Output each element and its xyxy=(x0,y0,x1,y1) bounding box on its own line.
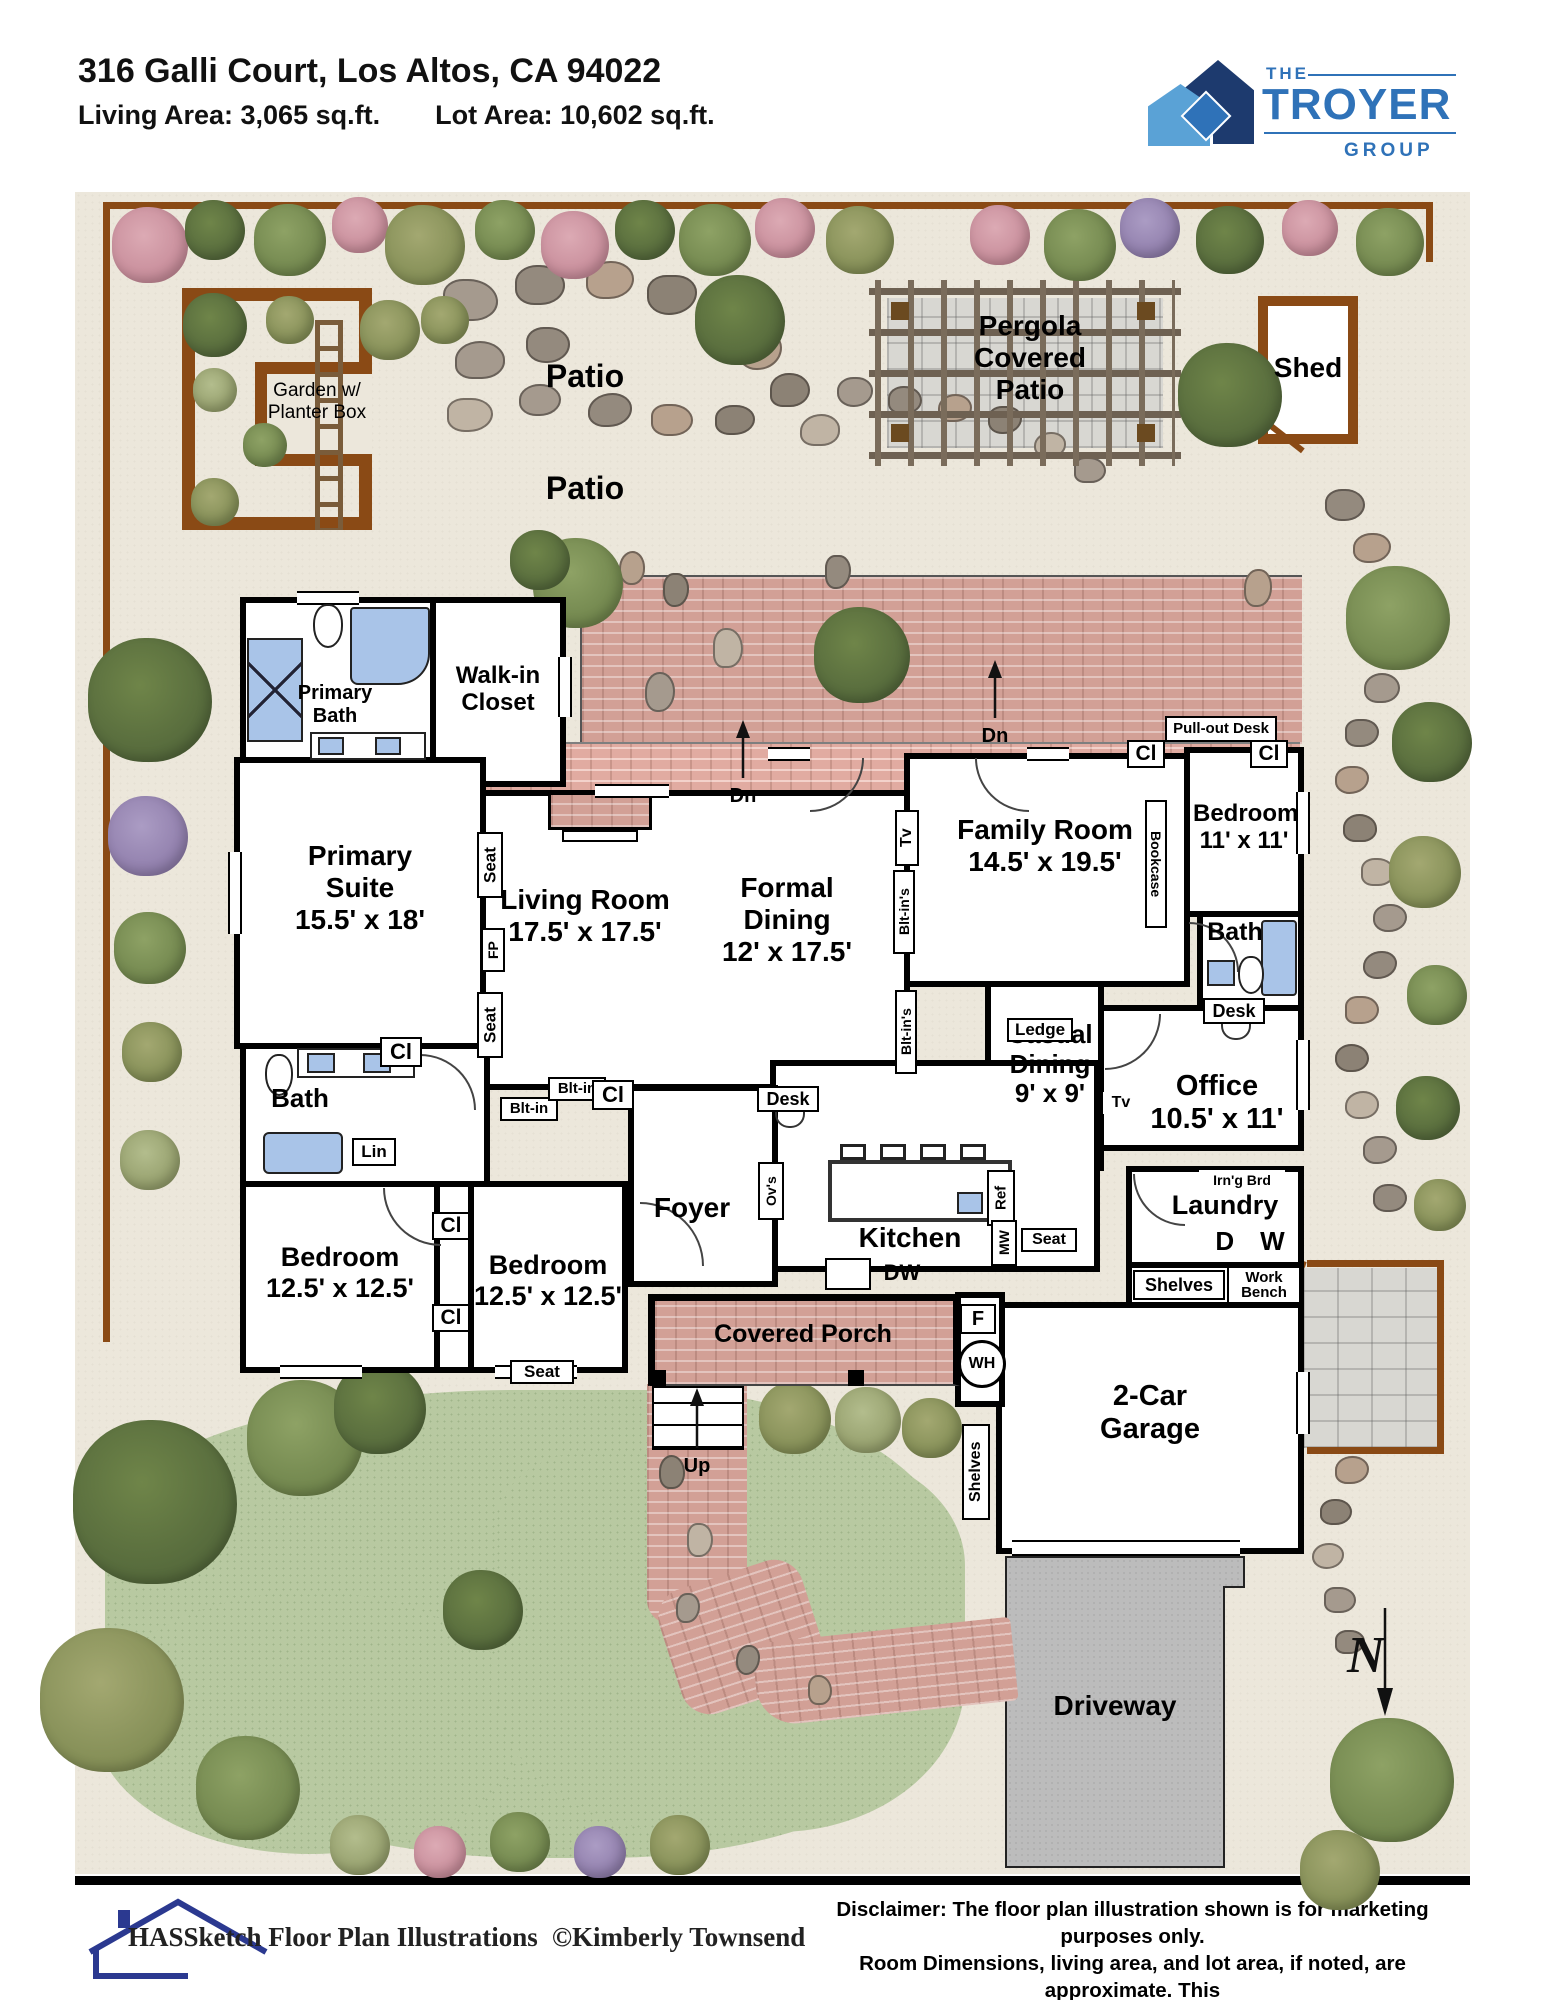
fireplace-hearth xyxy=(562,830,638,842)
kitchen-label: Kitchen xyxy=(835,1222,985,1254)
tree-icon xyxy=(183,293,247,357)
pergola-post-tr xyxy=(1137,302,1155,320)
porch-post-mid xyxy=(848,1370,864,1386)
tree-icon xyxy=(332,197,388,253)
tree-icon xyxy=(193,368,237,412)
window xyxy=(1296,1372,1310,1434)
stone-icon xyxy=(1345,719,1379,747)
logo-troyer: TROYER xyxy=(1262,80,1451,130)
tree-icon xyxy=(970,205,1030,265)
fp-label: FP xyxy=(481,928,505,972)
bedroom-sw-label: Bedroom12.5' x 12.5' xyxy=(250,1242,430,1304)
stone-icon xyxy=(1335,1044,1369,1072)
tree-icon xyxy=(679,204,751,276)
closet-label: Cl xyxy=(380,1037,422,1067)
garden-label: Garden w/ Planter Box xyxy=(263,380,371,423)
ironing-board-label: Irn'g Brd xyxy=(1199,1170,1285,1190)
stone-icon xyxy=(1312,1543,1344,1569)
stone-icon xyxy=(1320,1499,1352,1525)
shed-label: Shed xyxy=(1268,352,1348,384)
closet-label: Cl xyxy=(1127,740,1165,768)
tree-icon xyxy=(360,300,420,360)
family-room-label: Family Room14.5' x 19.5' xyxy=(955,814,1135,878)
tree-icon xyxy=(330,1815,390,1875)
tree-icon xyxy=(1356,208,1424,276)
lot-area: Lot Area: 10,602 sq.ft. xyxy=(435,100,715,130)
window xyxy=(1027,747,1069,761)
stone-icon xyxy=(1373,1184,1407,1212)
tree-icon xyxy=(114,912,186,984)
tree-icon xyxy=(1300,1830,1380,1910)
tree-icon xyxy=(254,204,326,276)
window xyxy=(1296,792,1310,854)
pull-out-desk-label: Pull-out Desk xyxy=(1165,716,1277,742)
furnace-label: F xyxy=(960,1304,996,1334)
window xyxy=(1296,1040,1310,1110)
formal-dining-label: Formal Dining12' x 17.5' xyxy=(697,872,877,968)
footer-rule xyxy=(75,1876,1470,1885)
floor-plan-page: 316 Galli Court, Los Altos, CA 94022 Liv… xyxy=(0,0,1545,2000)
tub xyxy=(263,1132,343,1174)
pergola-post-tl xyxy=(891,302,909,320)
bookcase-label: Bookcase xyxy=(1145,800,1167,928)
tree-icon xyxy=(88,638,212,762)
garage-door xyxy=(1012,1540,1240,1556)
tree-icon xyxy=(385,205,465,285)
tree-icon xyxy=(73,1420,237,1584)
shelves-label: Shelves xyxy=(962,1424,990,1520)
covered-porch-label: Covered Porch xyxy=(673,1320,933,1349)
foyer-label: Foyer xyxy=(637,1192,747,1224)
tree-icon xyxy=(615,200,675,260)
stone-icon xyxy=(808,1675,832,1705)
brand-text: HASSketch Floor Plan Illustrations xyxy=(128,1922,538,1952)
primary-suite-label: Primary Suite15.5' x 18' xyxy=(275,840,445,936)
tub xyxy=(350,607,430,685)
north-arrow: N xyxy=(1333,1604,1423,1720)
window xyxy=(558,657,572,717)
driveway-label: Driveway xyxy=(1035,1690,1195,1722)
island-sink xyxy=(957,1192,983,1214)
area-summary: Living Area: 3,065 sq.ft.Lot Area: 10,60… xyxy=(78,100,770,131)
tree-icon xyxy=(814,607,910,703)
sink xyxy=(318,737,344,755)
washer-label: W xyxy=(1260,1228,1285,1255)
tree-icon xyxy=(490,1812,550,1872)
bedroom-s-label: Bedroom12.5' x 12.5' xyxy=(463,1250,633,1312)
pergola-post-bl xyxy=(891,424,909,442)
tree-icon xyxy=(1414,1179,1466,1231)
stone-icon xyxy=(713,628,743,668)
dn-arrow: Dn xyxy=(723,720,763,808)
tree-icon xyxy=(243,423,287,467)
fence-paver-top xyxy=(1307,1260,1443,1267)
built-ins-label: Blt-in's xyxy=(893,870,915,954)
tree-icon xyxy=(40,1628,184,1772)
seat-label: Seat xyxy=(1021,1228,1077,1252)
stone-icon xyxy=(1364,673,1400,703)
stone-icon xyxy=(1363,951,1397,979)
toilet-icon xyxy=(1238,956,1264,994)
toilet-icon xyxy=(313,604,343,648)
primary-bath-label: Primary Bath xyxy=(275,682,395,728)
linen-label: Lin xyxy=(352,1138,396,1166)
logo-group: GROUP xyxy=(1344,140,1434,162)
patio-mid-label: Patio xyxy=(505,470,665,506)
garage-label: 2-Car Garage xyxy=(1065,1380,1235,1446)
troyer-logo: THE TROYER GROUP xyxy=(1148,58,1458,176)
tree-icon xyxy=(759,1382,831,1454)
tree-icon xyxy=(1407,965,1467,1025)
tree-icon xyxy=(191,478,239,526)
water-heater: WH xyxy=(958,1340,1006,1388)
tree-icon xyxy=(1120,198,1180,258)
dn-label: Dn xyxy=(723,785,763,808)
stool xyxy=(880,1144,906,1160)
stone-icon xyxy=(800,414,840,446)
north-letter: N xyxy=(1347,1626,1385,1685)
stone-icon xyxy=(687,1523,713,1557)
up-label: Up xyxy=(677,1455,717,1478)
walk-in-closet-label: Walk-in Closet xyxy=(438,662,558,717)
wh-label: WH xyxy=(969,1355,996,1373)
ovens-label: Ov's xyxy=(758,1162,784,1220)
tree-icon xyxy=(196,1736,300,1840)
tree-icon xyxy=(112,207,188,283)
fence-left xyxy=(103,202,110,1342)
tree-icon xyxy=(541,211,609,279)
disclaimer-line: Disclaimer: The floor plan illustration … xyxy=(800,1896,1465,1950)
fence-right-stub xyxy=(1426,202,1433,262)
stone-icon xyxy=(770,373,810,407)
fridge-label: Ref xyxy=(987,1170,1015,1226)
stone-icon xyxy=(1325,489,1365,521)
stone-icon xyxy=(1373,904,1407,932)
stone-icon xyxy=(1244,569,1272,607)
washer-dryer-label: DW xyxy=(1205,1224,1295,1258)
fence-paver-bottom xyxy=(1307,1447,1444,1454)
hall-bath-label: Bath xyxy=(255,1084,345,1114)
stool xyxy=(960,1144,986,1160)
living-area: Living Area: 3,065 sq.ft. xyxy=(78,100,380,130)
garden-trellis xyxy=(315,320,343,530)
footer-brand: HASSketch Floor Plan Illustrations©Kimbe… xyxy=(128,1922,805,1953)
stone-icon xyxy=(1343,814,1377,842)
driveway-notch xyxy=(1223,1556,1245,1588)
office-label: Office10.5' x 11' xyxy=(1137,1070,1297,1136)
tree-icon xyxy=(1044,209,1116,281)
stone-icon xyxy=(647,275,697,315)
sink xyxy=(307,1053,335,1073)
side-paver-patio xyxy=(1303,1268,1443,1448)
copyright-text: ©Kimberly Townsend xyxy=(552,1922,805,1952)
tree-icon xyxy=(1346,566,1450,670)
seat-label: Seat xyxy=(477,832,503,898)
fence-paver-right xyxy=(1437,1260,1444,1452)
stone-icon xyxy=(715,405,755,435)
stone-icon xyxy=(651,404,693,436)
site-plan: Pergola Covered Patio Shed Garden w/ Pla… xyxy=(75,192,1470,1874)
tree-icon xyxy=(574,1826,626,1878)
window xyxy=(768,747,810,761)
porch-post-left xyxy=(650,1370,666,1386)
stool xyxy=(840,1144,866,1160)
tree-icon xyxy=(414,1826,466,1878)
work-bench-label: Work Bench xyxy=(1227,1266,1301,1304)
closet-label: Cl xyxy=(1250,740,1288,768)
stone-icon xyxy=(455,341,505,379)
tree-icon xyxy=(120,1130,180,1190)
tree-icon xyxy=(108,796,188,876)
window xyxy=(228,852,242,934)
stone-icon xyxy=(1345,996,1379,1024)
window xyxy=(280,1365,362,1379)
tree-icon xyxy=(1392,702,1472,782)
living-room-label: Living Room17.5' x 17.5' xyxy=(500,884,670,948)
stone-icon xyxy=(619,551,645,585)
stone-icon xyxy=(1353,533,1391,563)
stone-icon xyxy=(588,393,632,427)
pergola-label: Pergola Covered Patio xyxy=(945,310,1115,406)
stone-icon xyxy=(447,398,493,432)
tree-icon xyxy=(475,200,535,260)
stone-icon xyxy=(1363,1136,1397,1164)
bedroom-ne-label: Bedroom11' x 11' xyxy=(1193,800,1295,855)
tree-icon xyxy=(443,1570,523,1650)
tree-icon xyxy=(421,296,469,344)
tv-label: Tv xyxy=(895,810,919,866)
microwave-label: MW xyxy=(991,1220,1017,1266)
stone-icon xyxy=(1335,1456,1369,1484)
built-ins-label: Blt-in's xyxy=(895,990,917,1074)
disclaimer: Disclaimer: The floor plan illustration … xyxy=(800,1896,1465,2000)
stone-icon xyxy=(1335,766,1369,794)
tree-icon xyxy=(902,1398,962,1458)
tree-icon xyxy=(695,275,785,365)
window xyxy=(297,591,359,605)
desk-label: Desk xyxy=(1203,998,1265,1024)
tree-icon xyxy=(185,200,245,260)
desk-label: Desk xyxy=(757,1086,819,1112)
kitchen-island xyxy=(828,1160,1012,1222)
tree-icon xyxy=(650,1815,710,1875)
shelves-label: Shelves xyxy=(1133,1270,1225,1300)
laundry-label: Laundry xyxy=(1160,1190,1290,1221)
tree-icon xyxy=(510,530,570,590)
dishwasher-label: DW xyxy=(877,1258,927,1288)
stool xyxy=(920,1144,946,1160)
closet-label: Cl xyxy=(432,1304,470,1332)
dn-label: Dn xyxy=(975,725,1015,748)
ledge-label: Ledge xyxy=(1007,1018,1073,1042)
bath-ne-label: Bath xyxy=(1203,918,1267,947)
tree-icon xyxy=(122,1022,182,1082)
closet-label: Cl xyxy=(592,1080,634,1110)
pergola-post-br xyxy=(1137,424,1155,442)
sink xyxy=(375,737,401,755)
tree-icon xyxy=(1389,836,1461,908)
tree-icon xyxy=(266,296,314,344)
patio-top-label: Patio xyxy=(515,358,655,394)
tree-icon xyxy=(1396,1076,1460,1140)
disclaimer-line: Room Dimensions, living area, and lot ar… xyxy=(800,1950,1465,2000)
page-title: 316 Galli Court, Los Altos, CA 94022 xyxy=(78,52,661,91)
up-arrow: Up xyxy=(677,1388,717,1480)
stone-icon xyxy=(837,377,873,407)
seat-label: Seat xyxy=(477,992,503,1058)
tree-icon xyxy=(1196,206,1264,274)
closet-label: Cl xyxy=(432,1212,470,1240)
seat-label: Seat xyxy=(510,1360,574,1384)
tree-icon xyxy=(1282,200,1338,256)
dryer-label: D xyxy=(1215,1228,1234,1255)
tree-icon xyxy=(835,1387,901,1453)
tree-icon xyxy=(755,198,815,258)
tree-icon xyxy=(826,206,894,274)
tree-icon xyxy=(1178,343,1282,447)
dishwasher xyxy=(825,1258,871,1290)
stone-icon xyxy=(1345,1091,1379,1119)
tree-icon xyxy=(1330,1718,1454,1842)
tv-label: Tv xyxy=(1103,1092,1139,1114)
sink xyxy=(1207,960,1235,986)
dn-arrow: Dn xyxy=(975,660,1015,748)
window xyxy=(595,784,669,798)
